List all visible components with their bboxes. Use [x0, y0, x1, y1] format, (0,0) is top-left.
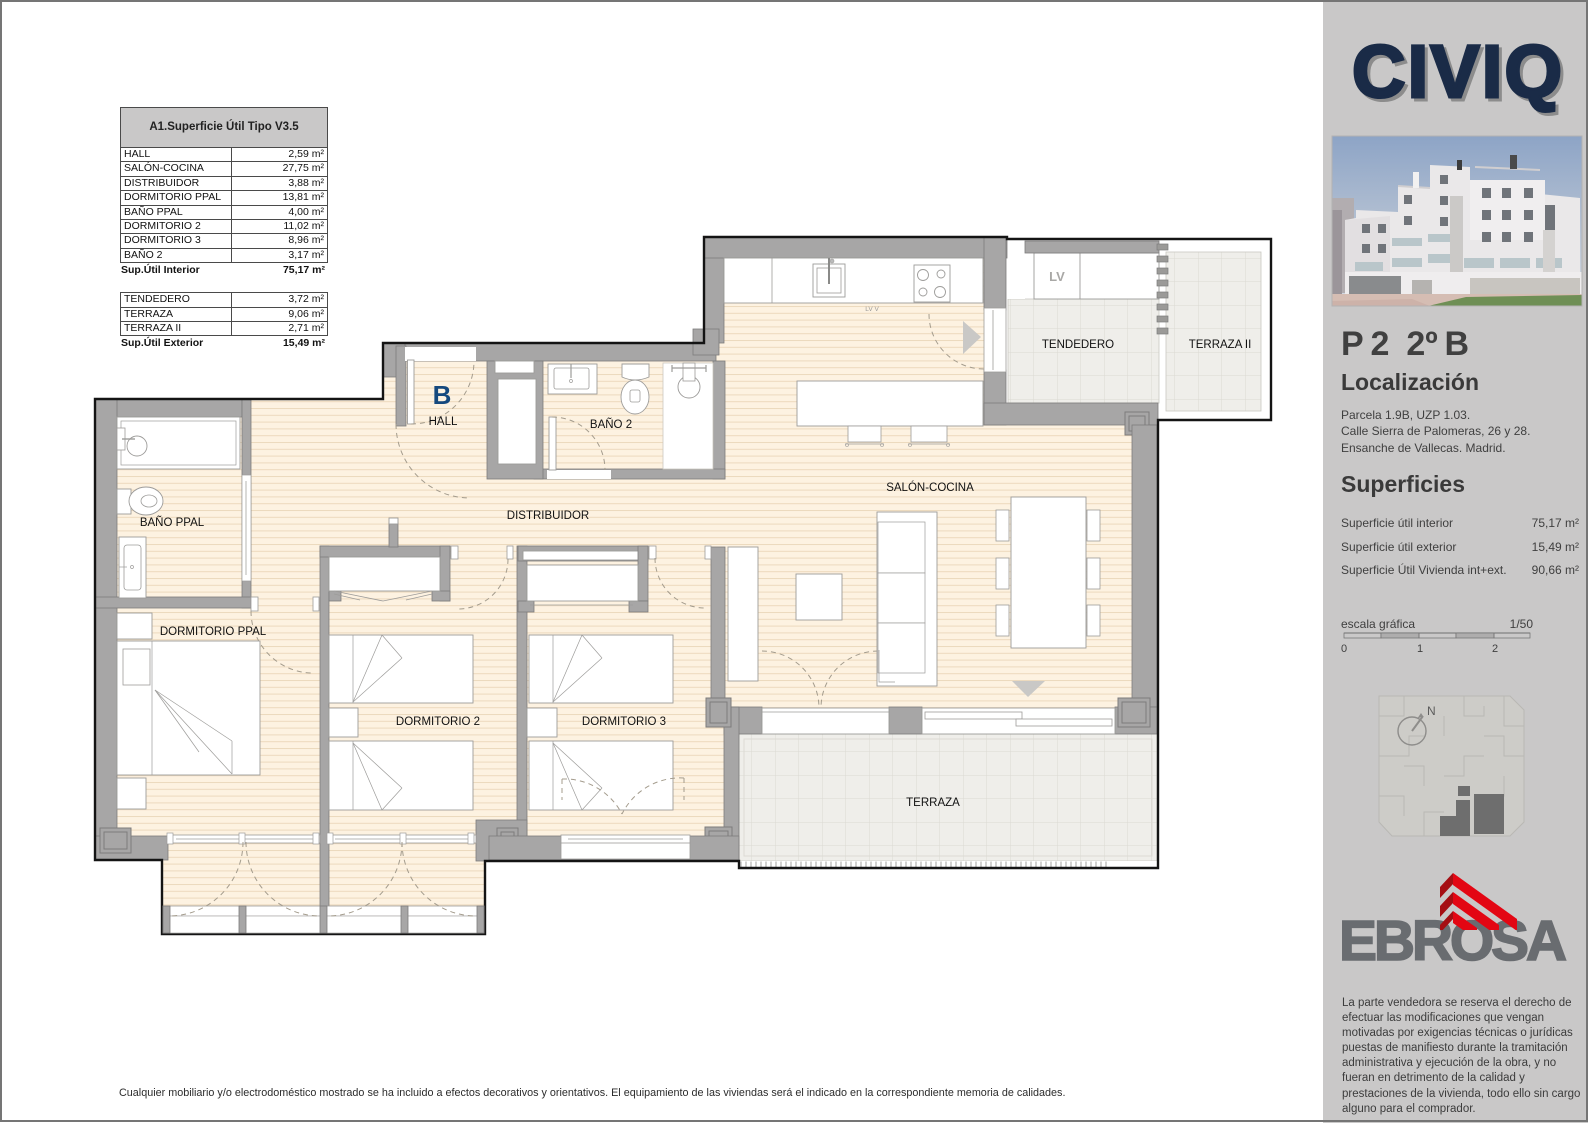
svg-text:SALÓN-COCINA: SALÓN-COCINA — [886, 481, 974, 494]
svg-text:DISTRIBUIDOR: DISTRIBUIDOR — [507, 510, 589, 522]
svg-text:DORMITORIO 2: DORMITORIO 2 — [396, 716, 480, 728]
svg-text:BAÑO PPAL: BAÑO PPAL — [140, 516, 205, 529]
svg-text:B: B — [433, 380, 452, 410]
svg-text:DORMITORIO 3: DORMITORIO 3 — [582, 716, 666, 728]
svg-text:LV V: LV V — [865, 306, 879, 313]
svg-text:HALL: HALL — [429, 416, 458, 428]
svg-text:TERRAZA II: TERRAZA II — [1189, 339, 1252, 351]
svg-text:CIVIQ: CIVIQ — [1352, 30, 1562, 113]
svg-text:BAÑO 2: BAÑO 2 — [590, 418, 632, 431]
svg-text:TERRAZA: TERRAZA — [906, 797, 960, 809]
svg-text:DORMITORIO PPAL: DORMITORIO PPAL — [160, 626, 267, 638]
svg-text:LV: LV — [1049, 269, 1065, 284]
svg-text:TENDEDERO: TENDEDERO — [1042, 339, 1114, 351]
svg-text:N: N — [1427, 704, 1436, 718]
